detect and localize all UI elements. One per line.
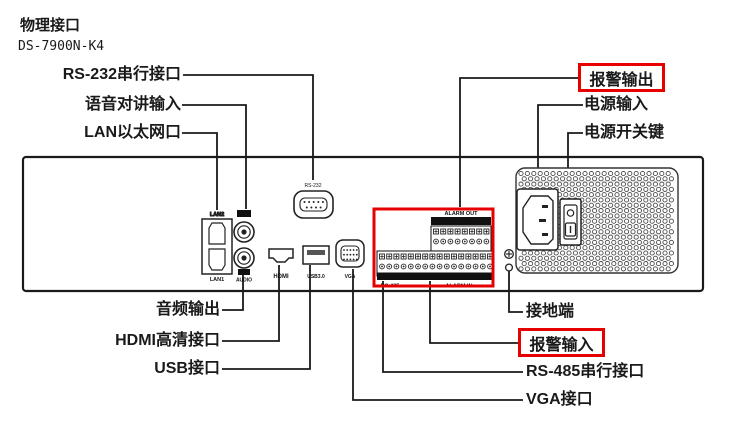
lan1-label: LAN1 [210,277,224,283]
callout-lan: LAN以太网口 [84,124,181,142]
audio-jack-label: AUDIO [236,278,252,284]
power-switch [560,199,581,245]
audio-in-jack-pin [241,229,246,234]
hdmi-port-label: HDMI [273,274,289,280]
lan1-port [209,249,225,270]
alarm-out-block: ALARM OUT 1 G 2 G 3 G 4 G [431,211,491,251]
callout-alarm-in: 报警输入 [529,331,593,355]
rs232-port-label: RS-232 [305,183,322,189]
callout-alarm-out-highlighted: 报警输出 [578,63,665,92]
callout-vga: VGA接口 [526,391,593,409]
power-pin-3 [542,233,548,236]
callout-power-in: 电源输入 [584,96,648,114]
alarm-out-port-label: ALARM OUT [445,211,479,217]
audio-in-chip-label: IN [242,212,246,217]
lan2-port [209,223,225,244]
power-pin-1 [542,205,548,208]
callout-usb: USB接口 [154,360,220,378]
power-inlet-socket [523,196,553,244]
audio-out-chip-label: OUT [240,270,249,275]
panel-diagram: 物理接口 DS-7900N-K4 LAN2 [0,0,734,427]
vga-port-label: VGA [345,274,356,280]
callout-rs232: RS-232串行接口 [63,66,181,84]
callout-power-switch: 电源开关键 [584,124,664,142]
power-switch-off-mark [567,210,573,216]
callout-audio-out: 音频输出 [156,301,220,319]
lan2-label: LAN2 [210,212,224,218]
callout-alarm-in-highlighted: 报警输入 [518,328,605,357]
power-pin-2 [539,219,546,222]
alarm-out-pin-labels: 1 G 2 G 3 G 4 G [434,220,489,225]
audio-out-jack-pin [241,255,246,260]
callout-rs485: RS-485串行接口 [526,363,644,381]
ground-hole [506,264,513,271]
power-inlet [517,189,558,250]
lan-ports: LAN2 LAN1 [202,212,232,283]
callout-audio-talk-in: 语音对讲输入 [85,96,181,114]
usb-port-tongue [307,250,325,255]
callout-ground: 接地端 [526,303,574,321]
callout-alarm-out: 报警输出 [589,66,653,90]
alarm-in-pin-labels: D+ D- G 1 2 3 4 5 6 7 8 G 9 10 11 12 13 … [380,276,490,280]
usb-port-label: USB3.0 [307,274,325,280]
leader-rs485 [383,281,523,372]
rs232-socket [300,198,327,211]
callout-hdmi: HDMI高清接口 [115,332,220,350]
